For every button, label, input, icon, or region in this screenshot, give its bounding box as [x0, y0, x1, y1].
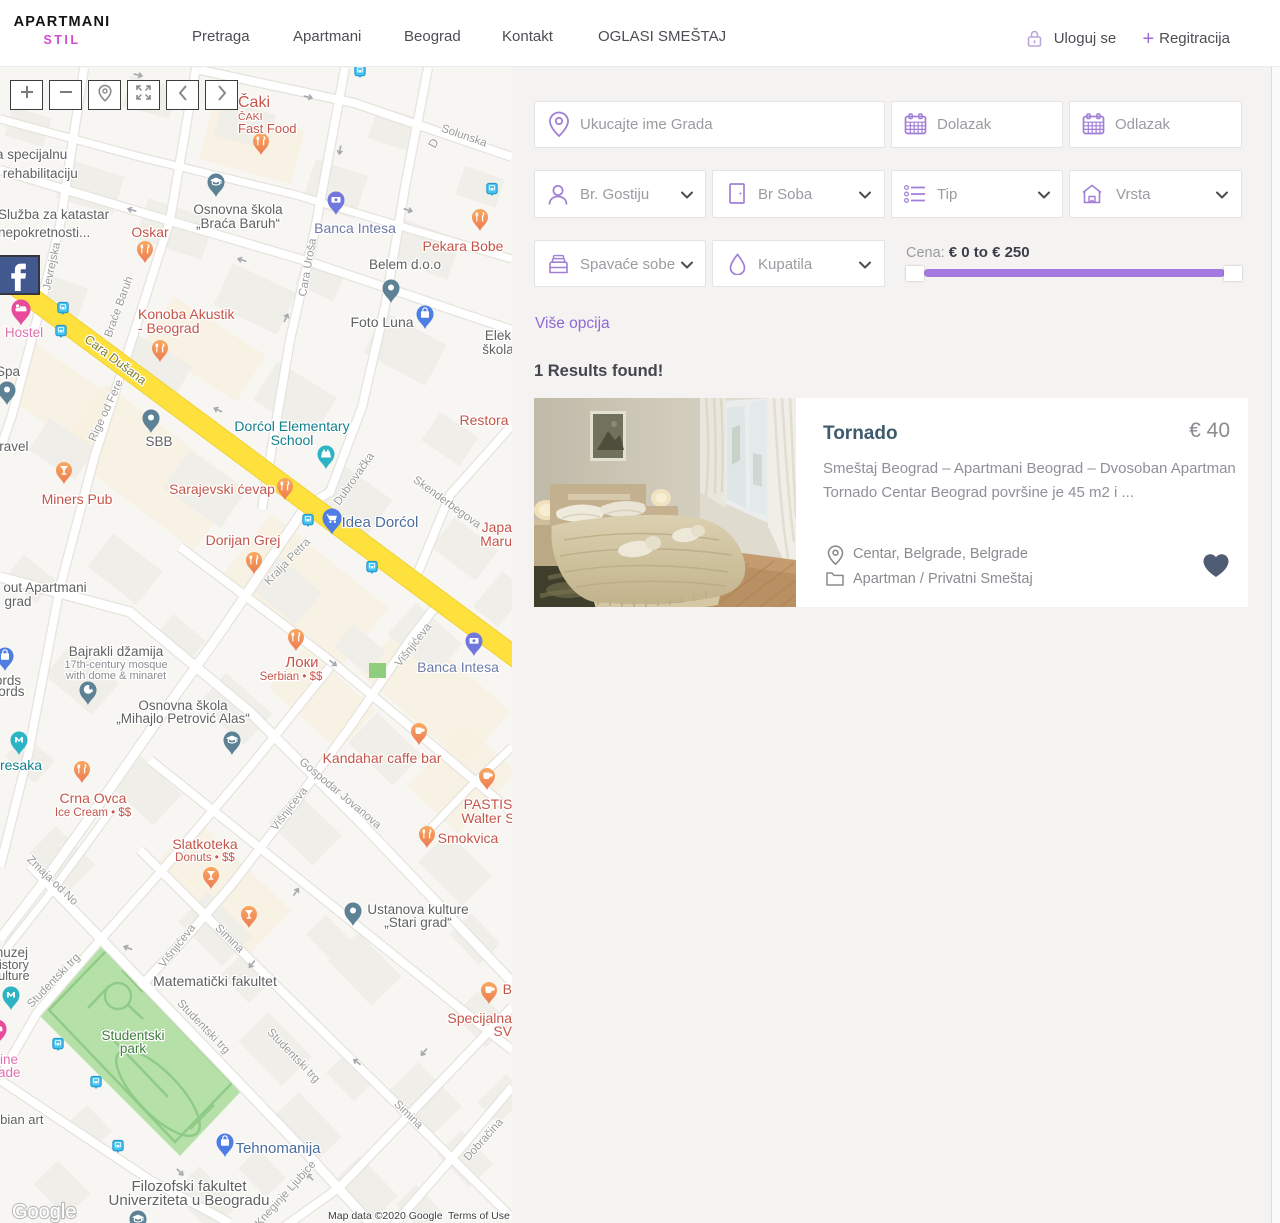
svg-text:ade: ade — [0, 1065, 21, 1080]
svg-text:SV: SV — [493, 1023, 512, 1039]
svg-text:„Stari grad“: „Stari grad“ — [384, 915, 452, 930]
svg-text:Serbian • $$: Serbian • $$ — [260, 671, 323, 683]
svg-text:Smokvica: Smokvica — [438, 830, 499, 846]
svg-text:i rehabilitaciju: i rehabilitaciju — [0, 166, 78, 181]
svg-text:cords: cords — [0, 684, 25, 699]
svg-text:Crna Ovca: Crna Ovca — [60, 790, 127, 806]
svg-text:Map data ©2020 Google: Map data ©2020 Google — [328, 1210, 443, 1222]
svg-text:Dorijan Grej: Dorijan Grej — [206, 532, 281, 548]
svg-text:travel: travel — [0, 439, 29, 454]
svg-text:Služba za katastar: Služba za katastar — [0, 207, 110, 222]
svg-text:with dome & minaret: with dome & minaret — [65, 670, 166, 682]
svg-text:a specijalnu: a specijalnu — [0, 147, 67, 162]
svg-text:Donuts • $$: Donuts • $$ — [175, 852, 235, 864]
svg-text:- Beograd: - Beograd — [138, 320, 199, 336]
svg-text:School: School — [271, 432, 314, 448]
svg-text:Sarajevski ćevap: Sarajevski ćevap — [169, 481, 275, 497]
svg-text:Foto Luna: Foto Luna — [350, 314, 413, 330]
svg-text:Fast Food: Fast Food — [238, 121, 297, 136]
svg-text:„Mihajlo Petrović Alas“: „Mihajlo Petrović Alas“ — [116, 711, 250, 726]
svg-text:out Apartmani: out Apartmani — [3, 580, 86, 595]
svg-text:Banca Intesa: Banca Intesa — [314, 220, 396, 236]
svg-text:Bajrakli džamija: Bajrakli džamija — [69, 644, 164, 659]
svg-text:Tehnomanija: Tehnomanija — [235, 1140, 321, 1157]
svg-text:B: B — [503, 981, 512, 997]
svg-text:nepokretnosti...: nepokretnosti... — [0, 225, 90, 240]
svg-text:Локи: Локи — [285, 654, 318, 671]
svg-text:Univerziteta u Beogradu: Univerziteta u Beogradu — [109, 1192, 270, 1209]
svg-text:Belem d.o.o: Belem d.o.o — [369, 257, 441, 272]
svg-text:Hostel: Hostel — [5, 325, 43, 340]
svg-text:Ice Cream • $$: Ice Cream • $$ — [55, 807, 132, 819]
svg-text:Spa: Spa — [0, 364, 20, 379]
svg-text:Oskar: Oskar — [131, 224, 169, 240]
svg-text:Čaki: Čaki — [238, 92, 270, 111]
svg-text:Osnovna škola: Osnovna škola — [193, 202, 283, 217]
svg-text:Miners Pub: Miners Pub — [42, 491, 113, 507]
svg-text:grad: grad — [4, 594, 31, 609]
svg-text:Terms of Use: Terms of Use — [448, 1210, 510, 1222]
svg-text:Kandahar caffe bar: Kandahar caffe bar — [323, 750, 442, 766]
svg-text:SBB: SBB — [145, 434, 172, 449]
svg-text:culture: culture — [0, 969, 30, 983]
svg-text:Pekara Bobe: Pekara Bobe — [423, 238, 504, 254]
svg-text:Walter S: Walter S — [461, 810, 512, 826]
svg-text:Slatkoteka: Slatkoteka — [172, 836, 238, 852]
svg-text:Idea Dorćol: Idea Dorćol — [342, 514, 419, 531]
svg-text:Google: Google — [12, 1201, 77, 1223]
svg-text:erbian art: erbian art — [0, 1112, 44, 1127]
svg-text:Matematički fakultet: Matematički fakultet — [153, 973, 277, 989]
svg-text:park: park — [120, 1041, 147, 1056]
svg-text:Restora: Restora — [459, 412, 508, 428]
svg-text:Maru: Maru — [480, 533, 512, 549]
svg-text:resaka: resaka — [0, 757, 42, 773]
svg-text:Elek: Elek — [485, 328, 512, 343]
svg-text:„Braća Baruh“: „Braća Baruh“ — [196, 216, 280, 231]
svg-text:Banca Intesa: Banca Intesa — [417, 659, 499, 675]
svg-text:škola: škola — [482, 342, 512, 357]
